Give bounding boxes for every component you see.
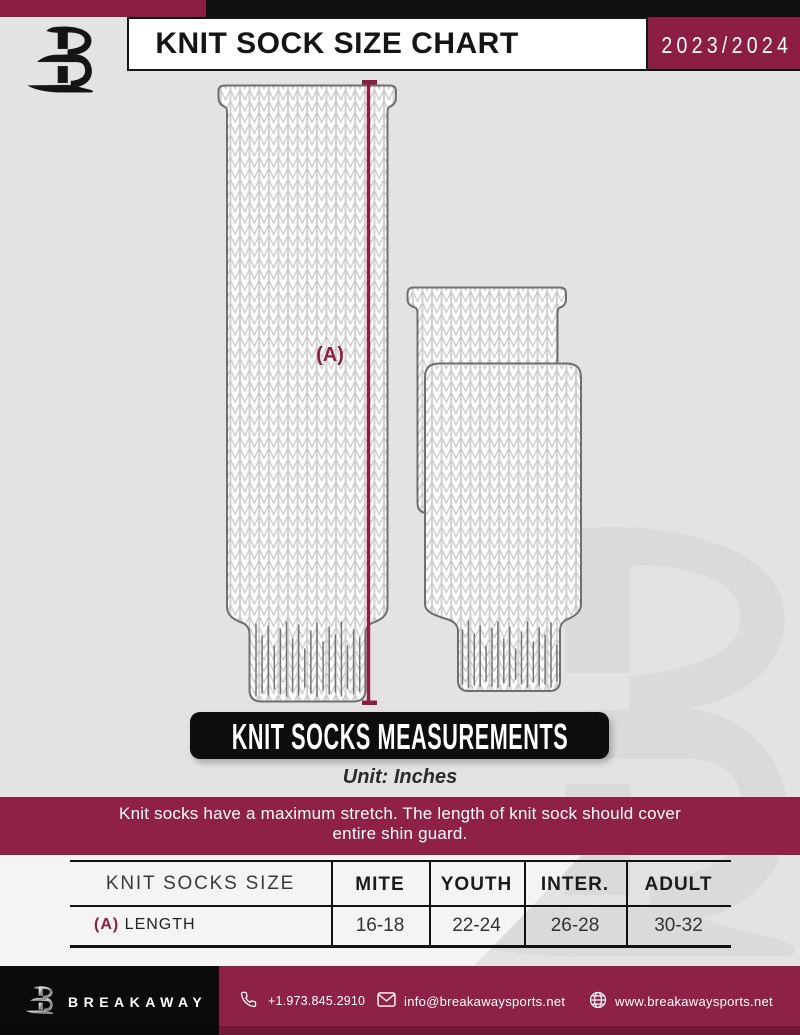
svg-text:(A): (A): [316, 344, 344, 366]
